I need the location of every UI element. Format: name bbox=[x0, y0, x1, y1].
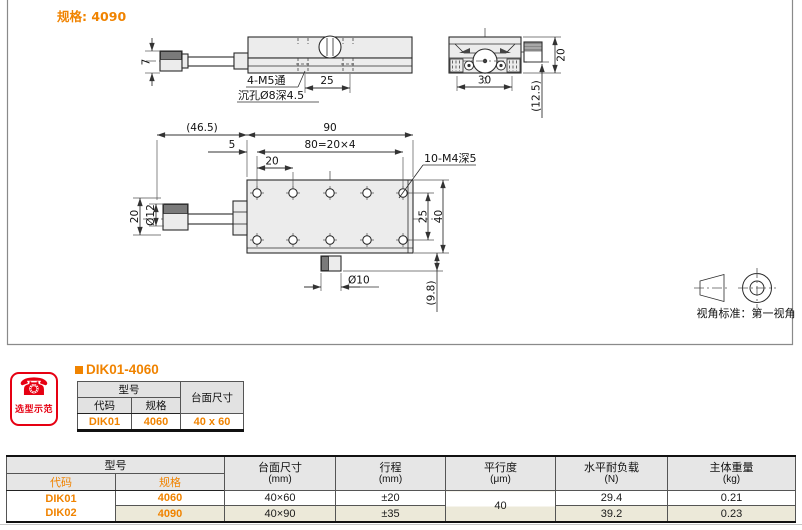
dim-end-width: 30 bbox=[478, 75, 491, 87]
dim-top-hole-span: 80=20×4 bbox=[305, 139, 356, 151]
dim-top-edge: 5 bbox=[229, 139, 236, 151]
col-unit: (kg) bbox=[668, 475, 795, 485]
col-unit: (N) bbox=[556, 475, 667, 485]
sel-table-size-value: 40 x 60 bbox=[181, 414, 244, 431]
label-m4-holes: 10-M4深5 bbox=[424, 152, 476, 165]
code-cell: DIK01 DIK02 bbox=[7, 491, 116, 523]
col-unit: (mm) bbox=[225, 475, 335, 485]
selection-example-table: 型号 台面尺寸 代码 规格 DIK01 4060 40 x 60 bbox=[77, 381, 244, 432]
catalog-page: 规格: 4090 7 bbox=[0, 0, 802, 530]
spec-value: 4090 bbox=[116, 506, 225, 523]
weight-value: 0.23 bbox=[668, 506, 796, 523]
view-standard-note: 视角标准：第一视角 bbox=[697, 306, 796, 320]
spec-value: 4060 bbox=[116, 491, 225, 506]
spec-header-travel: 行程 (mm) bbox=[336, 456, 446, 491]
label-m5-holes: 4-M5通 bbox=[247, 74, 285, 87]
drawing-spec-label: 规格: 4090 bbox=[57, 9, 126, 24]
code-value: DIK01 bbox=[7, 492, 115, 507]
sel-table-header-row1: 型号 台面尺寸 bbox=[78, 382, 244, 398]
selection-example-badge: ☎ 选型示范 bbox=[10, 372, 58, 426]
selection-example-title: DIK01-4060 bbox=[75, 362, 159, 377]
table-size-value: 40×60 bbox=[225, 491, 336, 506]
spec-row-dik01: DIK01 DIK02 4060 40×60 ±20 40 29.4 0.21 bbox=[7, 491, 796, 506]
dim-top-length: 90 bbox=[323, 122, 336, 134]
page-bottom-rule bbox=[0, 524, 802, 525]
dim-lock-offset: (9.8) bbox=[426, 281, 438, 306]
col-label: 水平耐负载 bbox=[556, 462, 667, 475]
spec-header-table-size: 台面尺寸 (mm) bbox=[225, 456, 336, 491]
sel-header-code: 代码 bbox=[78, 398, 132, 414]
front-view: 7 25 4-M5通 沉孔Ø8深4.5 bbox=[141, 36, 413, 102]
col-label: 主体重量 bbox=[668, 462, 795, 475]
spec-header-model: 型号 bbox=[7, 456, 225, 474]
travel-value: ±35 bbox=[336, 506, 446, 523]
col-unit: (mm) bbox=[336, 475, 445, 485]
col-label: 平行度 bbox=[446, 462, 555, 475]
phone-icon: ☎ bbox=[12, 374, 56, 402]
spec-table: 型号 台面尺寸 (mm) 行程 (mm) 平行度 (μm) 水平耐负载 (N) … bbox=[6, 455, 796, 523]
label-counterbore: 沉孔Ø8深4.5 bbox=[238, 89, 304, 102]
col-label: 台面尺寸 bbox=[225, 462, 335, 475]
spec-row-dik02: 4090 40×90 ±35 39.2 0.23 bbox=[7, 506, 796, 523]
sel-header-spec: 规格 bbox=[132, 398, 181, 414]
end-view: 30 20 (12.5) bbox=[449, 28, 568, 118]
spec-header-row1: 型号 台面尺寸 (mm) 行程 (mm) 平行度 (μm) 水平耐负载 (N) … bbox=[7, 456, 796, 474]
spec-header-weight: 主体重量 (kg) bbox=[668, 456, 796, 491]
load-value: 29.4 bbox=[556, 491, 668, 506]
spec-header-load: 水平耐负载 (N) bbox=[556, 456, 668, 491]
dim-lock-diameter: Ø10 bbox=[348, 275, 370, 287]
sel-spec-value: 4060 bbox=[132, 414, 181, 431]
spec-header-spec: 规格 bbox=[116, 474, 225, 491]
dim-knob-diameter: Ø12 bbox=[145, 204, 157, 226]
col-label: 行程 bbox=[336, 462, 445, 475]
orange-square-bullet bbox=[75, 366, 83, 374]
first-angle-symbol: 视角标准：第一视角 bbox=[694, 268, 796, 320]
selection-example-model: DIK01-4060 bbox=[86, 362, 159, 377]
technical-drawing: 规格: 4090 7 bbox=[0, 0, 802, 348]
dim-top-width: 40 bbox=[433, 210, 445, 223]
sel-header-table-size: 台面尺寸 bbox=[181, 382, 244, 414]
parallelism-value: 40 bbox=[446, 491, 556, 523]
spec-header-code: 代码 bbox=[7, 474, 116, 491]
dim-body-height: 20 bbox=[129, 210, 141, 223]
col-unit: (μm) bbox=[446, 475, 555, 485]
dim-top-hole-pitch: 20 bbox=[265, 156, 278, 168]
table-size-value: 40×90 bbox=[225, 506, 336, 523]
load-value: 39.2 bbox=[556, 506, 668, 523]
sel-header-model: 型号 bbox=[78, 382, 181, 398]
travel-value: ±20 bbox=[336, 491, 446, 506]
sel-code-value: DIK01 bbox=[78, 414, 132, 431]
sel-table-data-row: DIK01 4060 40 x 60 bbox=[78, 414, 244, 431]
dim-front-height: 7 bbox=[141, 59, 153, 66]
dim-end-height: 20 bbox=[556, 48, 568, 61]
dim-top-hole-row-span: 25 bbox=[418, 210, 430, 223]
spec-header-parallelism: 平行度 (μm) bbox=[446, 456, 556, 491]
dim-end-center-height: (12.5) bbox=[531, 80, 543, 112]
top-view: (46.5) 90 5 80=20×4 20 10-M4深5 25 bbox=[129, 122, 476, 312]
badge-label: 选型示范 bbox=[12, 402, 56, 415]
dim-front-pitch: 25 bbox=[320, 75, 333, 87]
dim-top-overhang: (46.5) bbox=[186, 122, 218, 134]
weight-value: 0.21 bbox=[668, 491, 796, 506]
code-value: DIK02 bbox=[7, 506, 115, 521]
